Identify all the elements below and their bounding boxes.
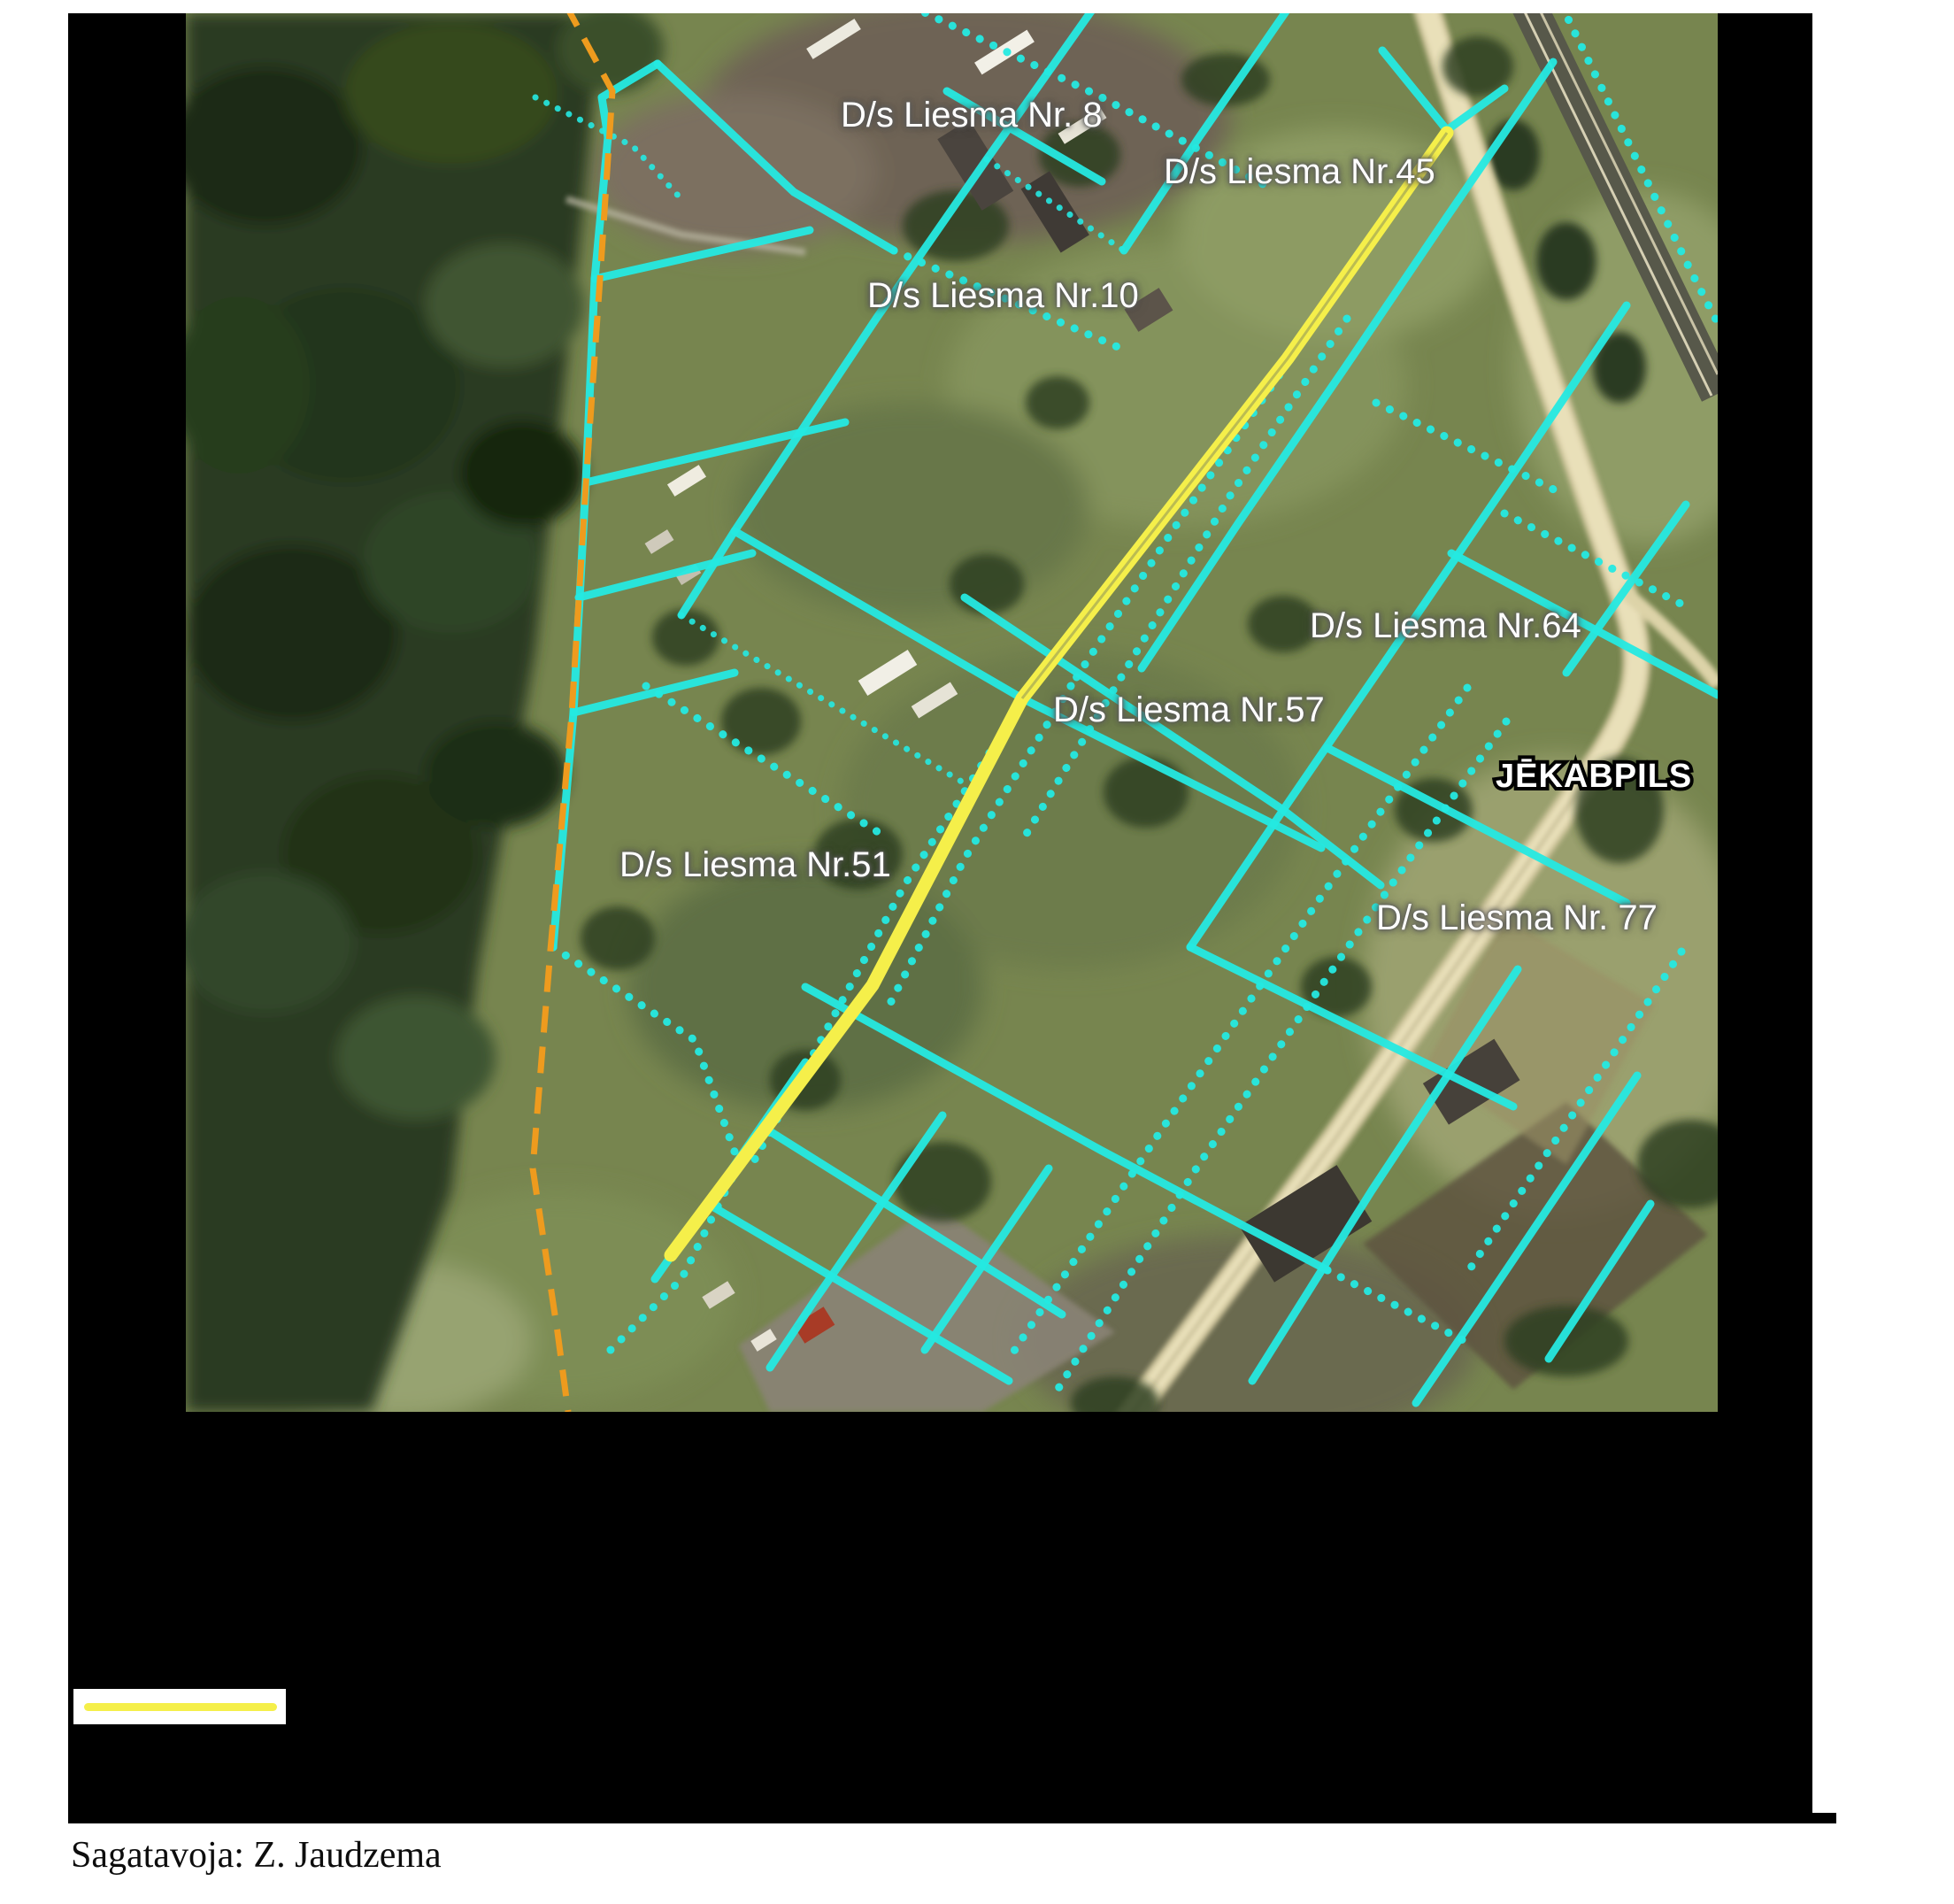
footer-credit: Sagatavoja: Z. Jaudzema (71, 1834, 442, 1877)
map-label-liesma-8: D/s Liesma Nr. 8 (841, 96, 1103, 135)
aerial-photo: D/s Liesma Nr. 8D/s Liesma Nr.45D/s Lies… (186, 13, 1718, 1412)
legend-box (73, 1689, 286, 1724)
legend-highlight-swatch (84, 1703, 277, 1711)
aerial-photo-canvas: D/s Liesma Nr. 8D/s Liesma Nr.45D/s Lies… (186, 13, 1718, 1412)
map-label-liesma-45: D/s Liesma Nr.45 (1164, 152, 1435, 191)
map-frame-notch (1812, 1813, 1836, 1823)
map-label-liesma-77: D/s Liesma Nr. 77 (1376, 898, 1658, 937)
map-label-liesma-57: D/s Liesma Nr.57 (1053, 690, 1325, 729)
map-label-liesma-51: D/s Liesma Nr.51 (619, 845, 891, 884)
map-label-jekabpils: JĒKABPILS (1496, 758, 1692, 795)
map-label-liesma-64: D/s Liesma Nr.64 (1310, 606, 1581, 645)
map-label-liesma-10: D/s Liesma Nr.10 (867, 276, 1139, 315)
